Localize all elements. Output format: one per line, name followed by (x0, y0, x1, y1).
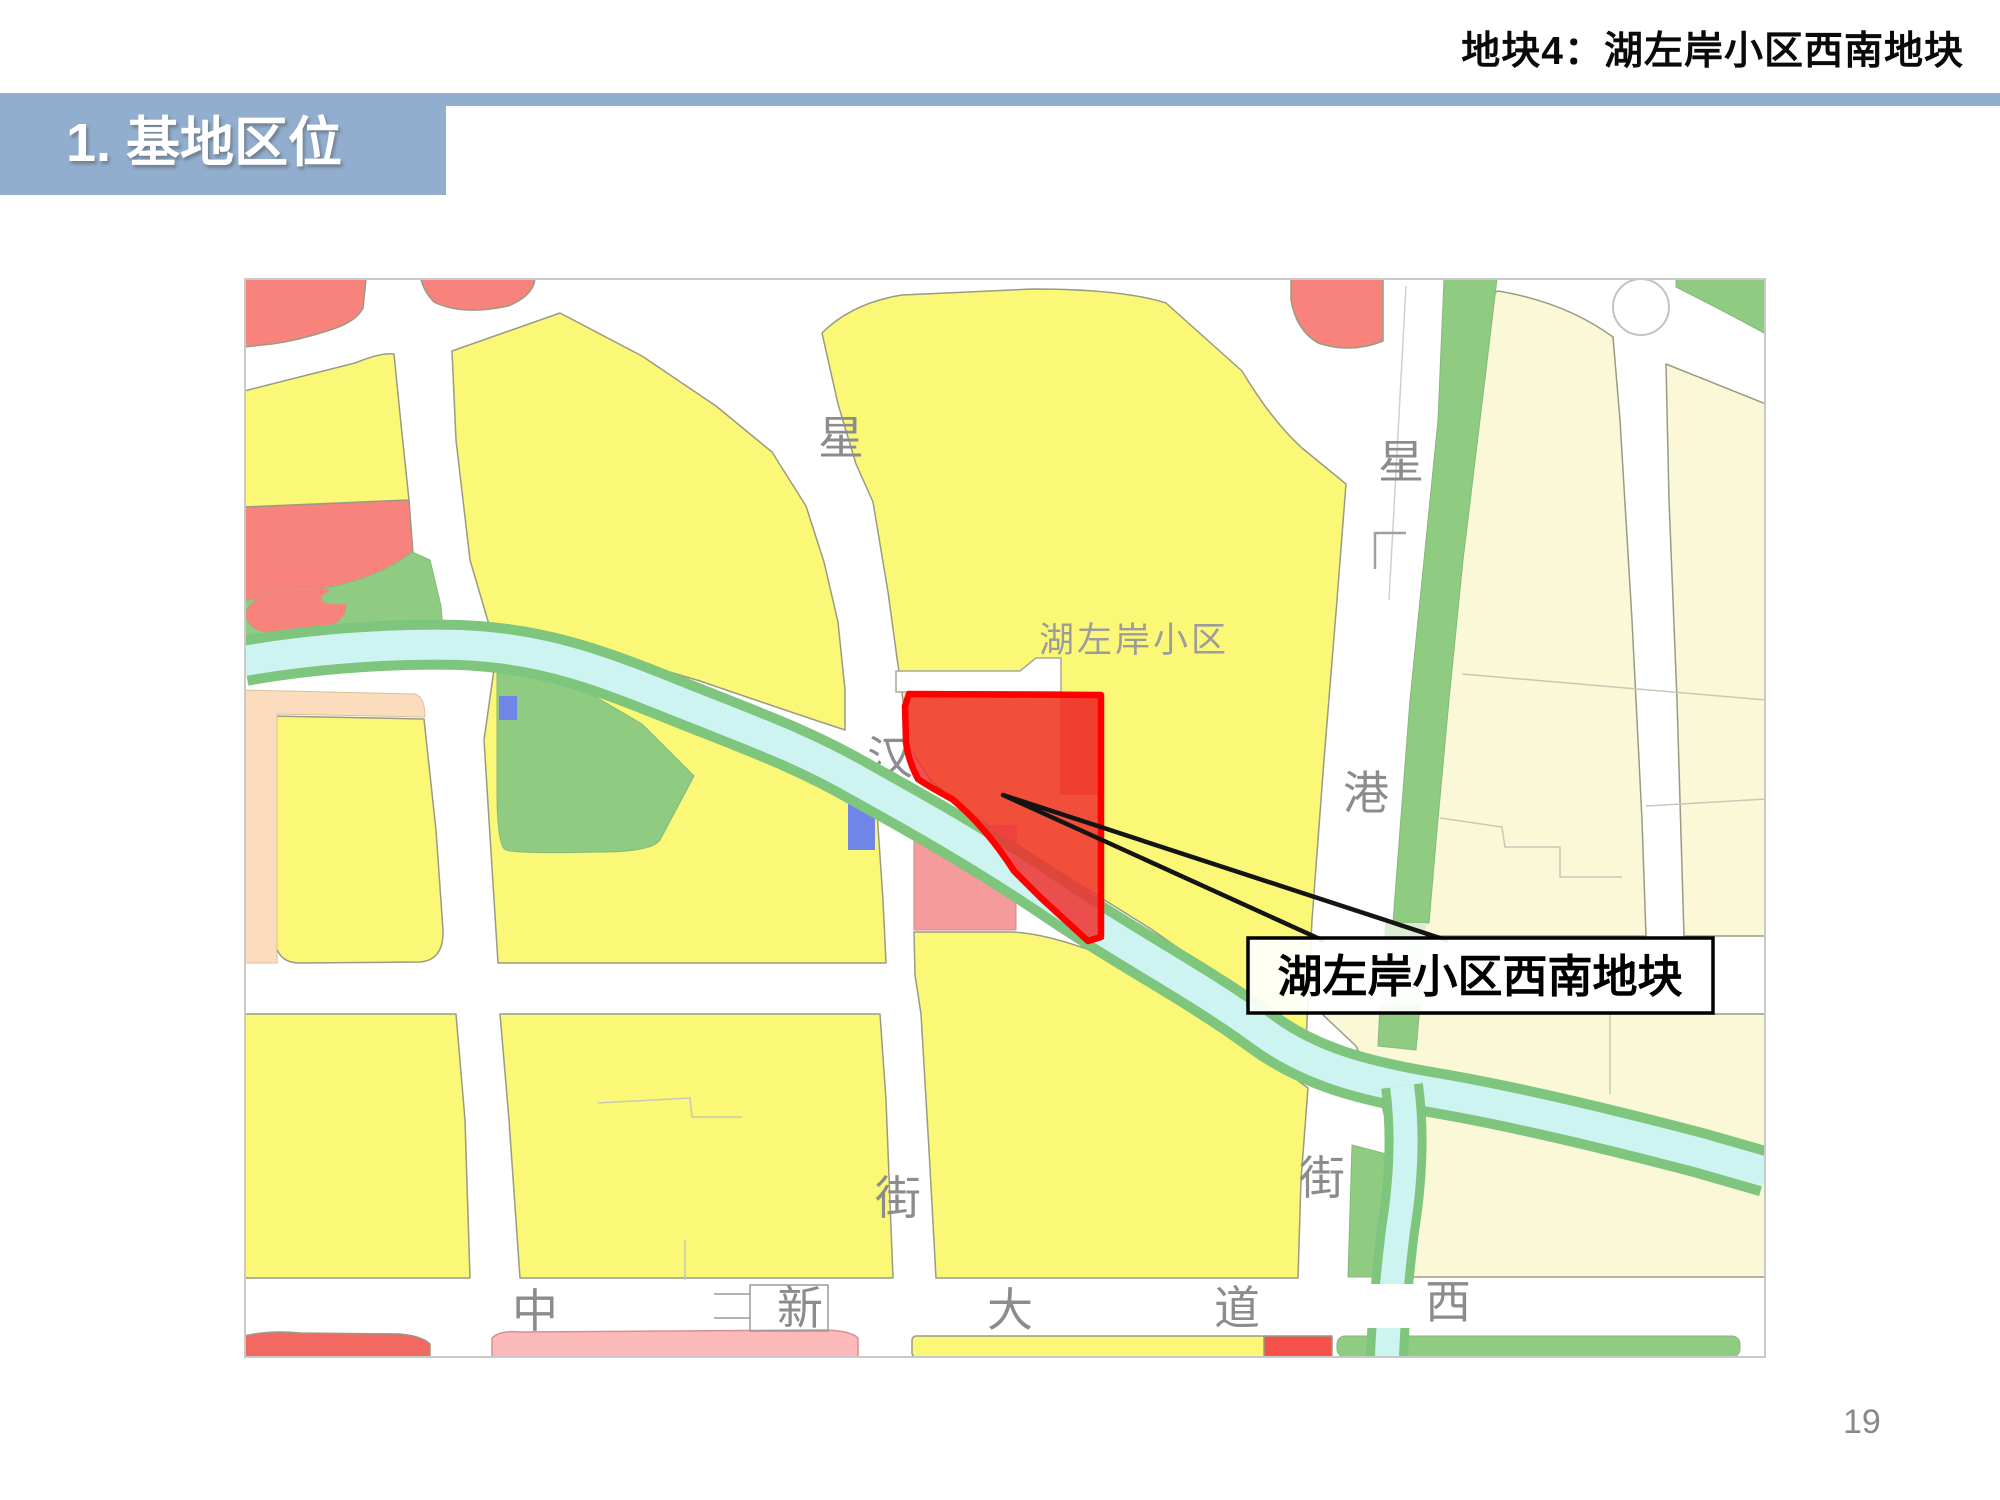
roundabout (1613, 279, 1669, 335)
slide: 地块4：湖左岸小区西南地块 1. 基地区位 (0, 0, 2000, 1500)
parcel-pale-east-b (1666, 364, 1766, 936)
parcel-yellow-sw-lower (500, 1014, 893, 1278)
road-label-xing-2: 星 (1378, 436, 1424, 488)
road-label-xi: 西 (1425, 1276, 1471, 1328)
section-header: 1. 基地区位 (0, 93, 446, 193)
location-map: 汉 星 街 星 港 街 中 新 大 道 西 (244, 278, 1766, 1358)
road-label-dao: 道 (1214, 1282, 1260, 1334)
parcel-yellow-west-lower (244, 1014, 470, 1278)
road-label-zhong: 中 (512, 1285, 558, 1337)
district-label: 湖左岸小区 (1039, 621, 1229, 660)
road-label-jie-2: 街 (1299, 1152, 1345, 1204)
road-label-gang: 港 (1343, 767, 1389, 819)
page-number: 19 (1843, 1403, 1881, 1442)
road-label-jie-1: 街 (875, 1172, 921, 1224)
road-label-xing-1: 星 (818, 412, 864, 464)
land-use-map: 汉 星 街 星 港 街 中 新 大 道 西 (244, 278, 1766, 1358)
road-label-xin: 新 (777, 1282, 823, 1334)
section-header-block: 1. 基地区位 (0, 93, 446, 195)
parcel-red-strip-sw (244, 1332, 430, 1357)
blue-feature-1 (499, 696, 517, 720)
parcel-yellow-west-mid (272, 716, 443, 963)
page-title: 地块4：湖左岸小区西南地块 (1461, 20, 1964, 76)
parcel-red-strip-s (1264, 1336, 1332, 1357)
parcel-yellow-strip-south (912, 1336, 1266, 1357)
callout-label: 湖左岸小区西南地块 (1277, 951, 1682, 1002)
road-label-da: 大 (987, 1284, 1033, 1336)
road-bridge (1356, 1284, 1420, 1328)
